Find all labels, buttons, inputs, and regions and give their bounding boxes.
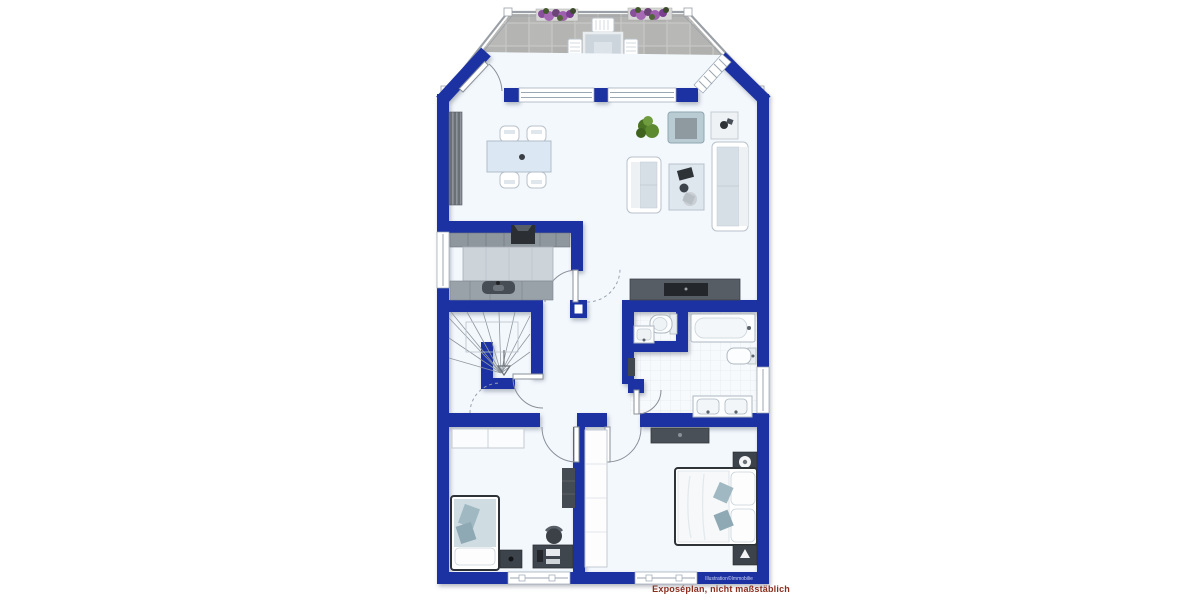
wall-hall-bottom-left <box>437 413 540 427</box>
watermark: Illustration©Immobilie <box>705 575 753 582</box>
railing-post <box>684 8 692 16</box>
single-bed <box>451 496 499 570</box>
bathtub <box>691 314 755 342</box>
wc-sink <box>634 326 654 343</box>
bed-pillow <box>455 548 495 565</box>
bathroom-radiator <box>628 358 635 376</box>
toilet-bath <box>727 348 756 364</box>
built-in-wardrobe <box>585 430 607 567</box>
coffee-table <box>669 164 704 210</box>
flower-box-left <box>536 8 578 21</box>
sofa-large <box>712 142 748 231</box>
radiator <box>449 112 462 205</box>
bed-pillow <box>731 472 755 505</box>
side-table <box>711 112 738 139</box>
wall-living-bottom <box>622 300 769 312</box>
window-terrace-left <box>519 88 594 102</box>
terrace-chair <box>592 18 614 32</box>
desk <box>533 545 573 568</box>
floor-plan-page: Illustration©Immobilie Exposéplan, nicht… <box>0 0 1200 600</box>
wall-mid-left <box>437 300 543 312</box>
dining-table <box>487 141 551 172</box>
wall-kitchen-right <box>571 221 583 271</box>
desk-chair <box>546 527 562 544</box>
floor-plan-canvas: Illustration©Immobilie Exposéplan, nicht… <box>0 0 1200 600</box>
wall-hall-bottom-post <box>577 413 607 427</box>
kitchen-counter <box>463 247 553 281</box>
wall-right <box>757 94 769 584</box>
window-terrace-right <box>608 88 676 102</box>
footer-note: Exposéplan, nicht maßstäblich <box>652 584 790 594</box>
flower-box-right <box>628 7 672 20</box>
double-bed <box>675 468 757 545</box>
railing-post <box>504 8 512 16</box>
kitchen <box>450 225 570 300</box>
wall-kitchen-top <box>437 221 583 233</box>
wall-post <box>504 88 519 102</box>
wall-stair-right <box>531 312 543 378</box>
bed-pillow <box>731 509 755 542</box>
armchair <box>668 112 704 143</box>
double-vanity <box>693 396 752 417</box>
wall-post <box>594 88 608 102</box>
sofa-small <box>627 157 661 213</box>
tv-lowboard <box>630 279 740 300</box>
nightstand-bottom <box>733 545 757 565</box>
wall-wc-horizontal <box>622 341 688 352</box>
shelf <box>562 468 575 508</box>
wall-left <box>437 94 449 584</box>
wall-post <box>676 88 698 102</box>
